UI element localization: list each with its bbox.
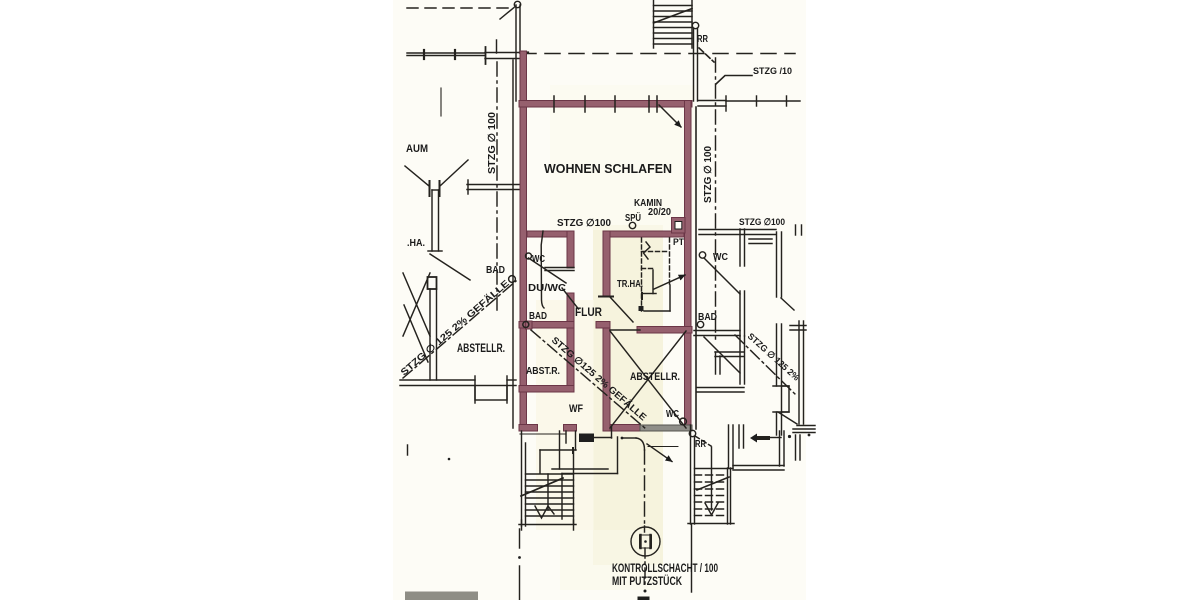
svg-text:.HA.: .HA. <box>407 238 425 249</box>
svg-text:STZG ∅ 100: STZG ∅ 100 <box>487 112 498 174</box>
svg-text:RR: RR <box>695 439 707 450</box>
svg-text:ABST.R.: ABST.R. <box>526 366 560 377</box>
svg-text:BAD: BAD <box>529 311 547 322</box>
svg-text:WC: WC <box>713 251 728 263</box>
svg-text:SPÜ: SPÜ <box>625 211 641 224</box>
svg-text:STZG ∅ 100: STZG ∅ 100 <box>703 146 714 203</box>
svg-text:WC: WC <box>666 409 679 420</box>
svg-text:WF: WF <box>569 403 583 415</box>
svg-text:MIT PUTZSTÜCK: MIT PUTZSTÜCK <box>612 573 682 588</box>
svg-text:ABSTELLR.: ABSTELLR. <box>457 343 505 355</box>
svg-text:STZG ∅100: STZG ∅100 <box>557 218 611 229</box>
svg-text:STZG ∅100: STZG ∅100 <box>739 217 785 228</box>
svg-text:BAD: BAD <box>698 312 717 323</box>
svg-text:TR.HA.: TR.HA. <box>617 279 643 290</box>
svg-text:WC: WC <box>532 254 545 265</box>
svg-text:ABSTELLR.: ABSTELLR. <box>630 371 680 383</box>
svg-text:RR: RR <box>697 34 709 45</box>
svg-text:20/20: 20/20 <box>648 207 671 218</box>
svg-text:BAD: BAD <box>486 265 505 276</box>
svg-text:STZG /10: STZG /10 <box>753 66 792 77</box>
svg-text:DU/WC: DU/WC <box>528 282 566 294</box>
svg-text:PT: PT <box>673 237 684 248</box>
svg-text:KONTROLLSCHACHT / 100: KONTROLLSCHACHT / 100 <box>612 561 718 575</box>
svg-text:FLUR: FLUR <box>575 305 602 319</box>
svg-text:AUM: AUM <box>406 143 428 155</box>
svg-text:WOHNEN SCHLAFEN: WOHNEN SCHLAFEN <box>544 161 672 176</box>
